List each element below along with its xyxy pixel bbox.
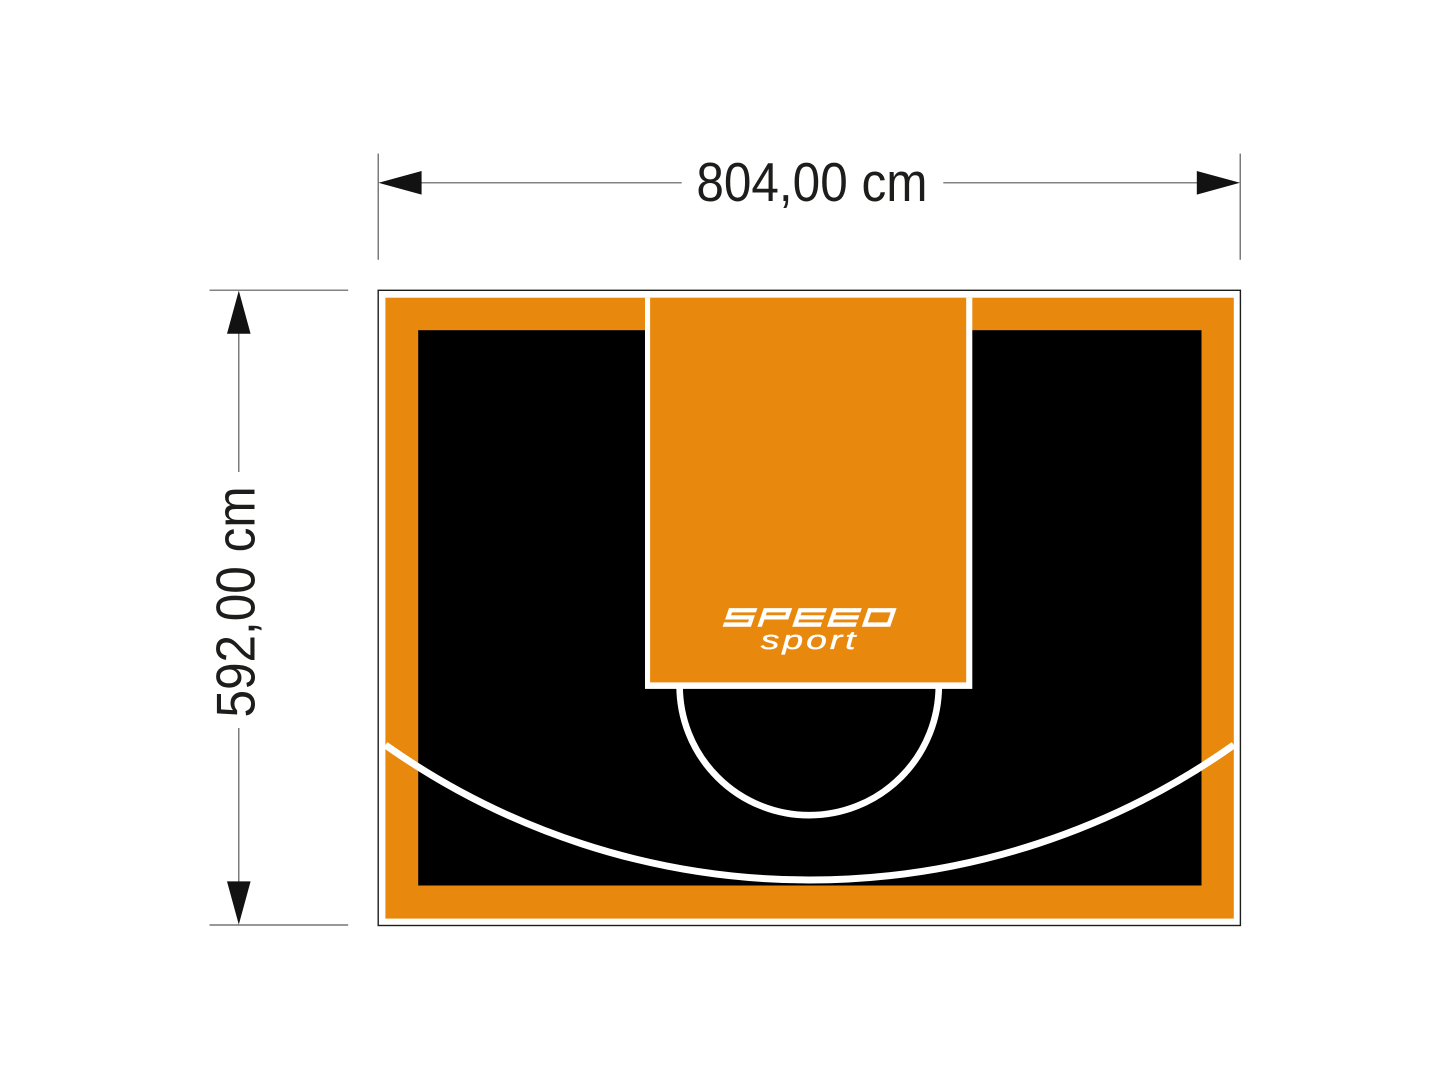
svg-text:592,00 cm: 592,00 cm — [206, 486, 267, 717]
svg-text:804,00 cm: 804,00 cm — [696, 153, 927, 214]
svg-text:sport: sport — [761, 625, 859, 654]
